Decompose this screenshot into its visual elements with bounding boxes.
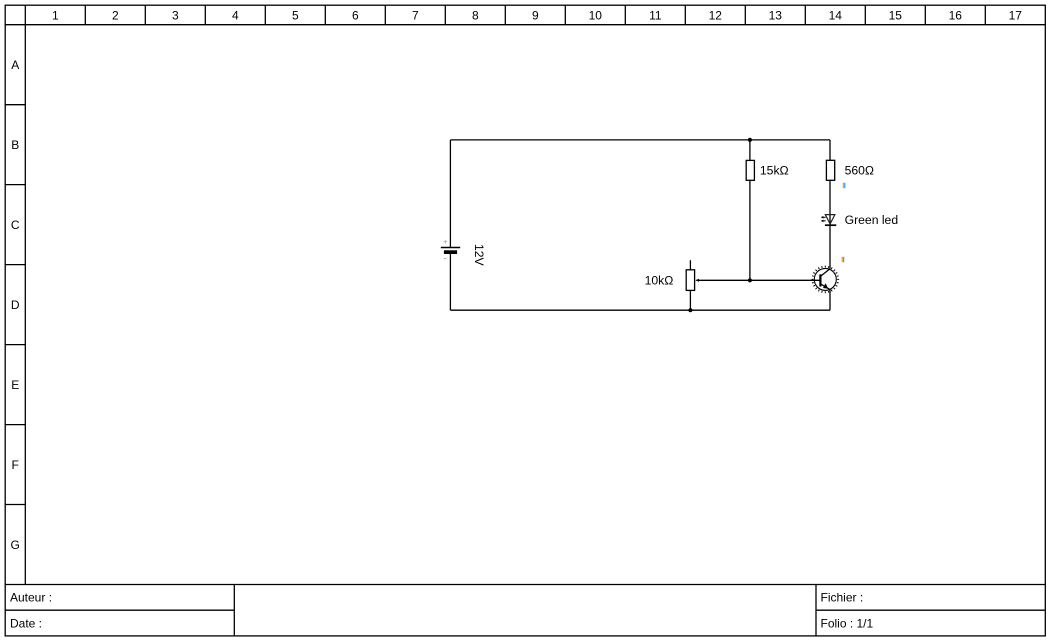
svg-text:G: G [11,538,20,552]
svg-text:2: 2 [112,8,119,22]
svg-text:12V: 12V [472,244,486,267]
svg-text:560Ω: 560Ω [845,164,874,178]
svg-text:Green led: Green led [845,213,899,227]
svg-text:Fichier :: Fichier : [821,591,864,605]
svg-text:+: + [443,237,448,246]
svg-text:15kΩ: 15kΩ [760,164,789,178]
svg-text:D: D [11,298,20,312]
svg-text:B: B [11,138,19,152]
svg-text:4: 4 [232,8,239,22]
svg-text:16: 16 [949,8,963,22]
svg-text:13: 13 [769,8,783,22]
svg-text:15: 15 [889,8,903,22]
svg-text:C: C [11,218,20,232]
svg-text:A: A [11,58,19,72]
svg-text:14: 14 [829,8,843,22]
svg-text:10kΩ: 10kΩ [645,274,674,288]
svg-text:F: F [12,458,19,472]
svg-text:11: 11 [649,8,662,22]
svg-text:5: 5 [292,8,299,22]
svg-text:17: 17 [1009,8,1023,22]
svg-text:Folio : 1/1: Folio : 1/1 [821,616,874,630]
svg-text:1: 1 [52,8,59,22]
svg-text:3: 3 [172,8,179,22]
svg-text:E: E [11,378,19,392]
svg-text:6: 6 [352,8,359,22]
svg-text:Auteur :: Auteur : [10,591,52,605]
svg-text:8: 8 [472,8,479,22]
svg-text:Date :: Date : [10,616,42,630]
svg-text:10: 10 [589,8,603,22]
svg-text:7: 7 [412,8,419,22]
svg-text:-: - [444,254,447,263]
svg-text:9: 9 [532,8,539,22]
svg-text:12: 12 [709,8,723,22]
